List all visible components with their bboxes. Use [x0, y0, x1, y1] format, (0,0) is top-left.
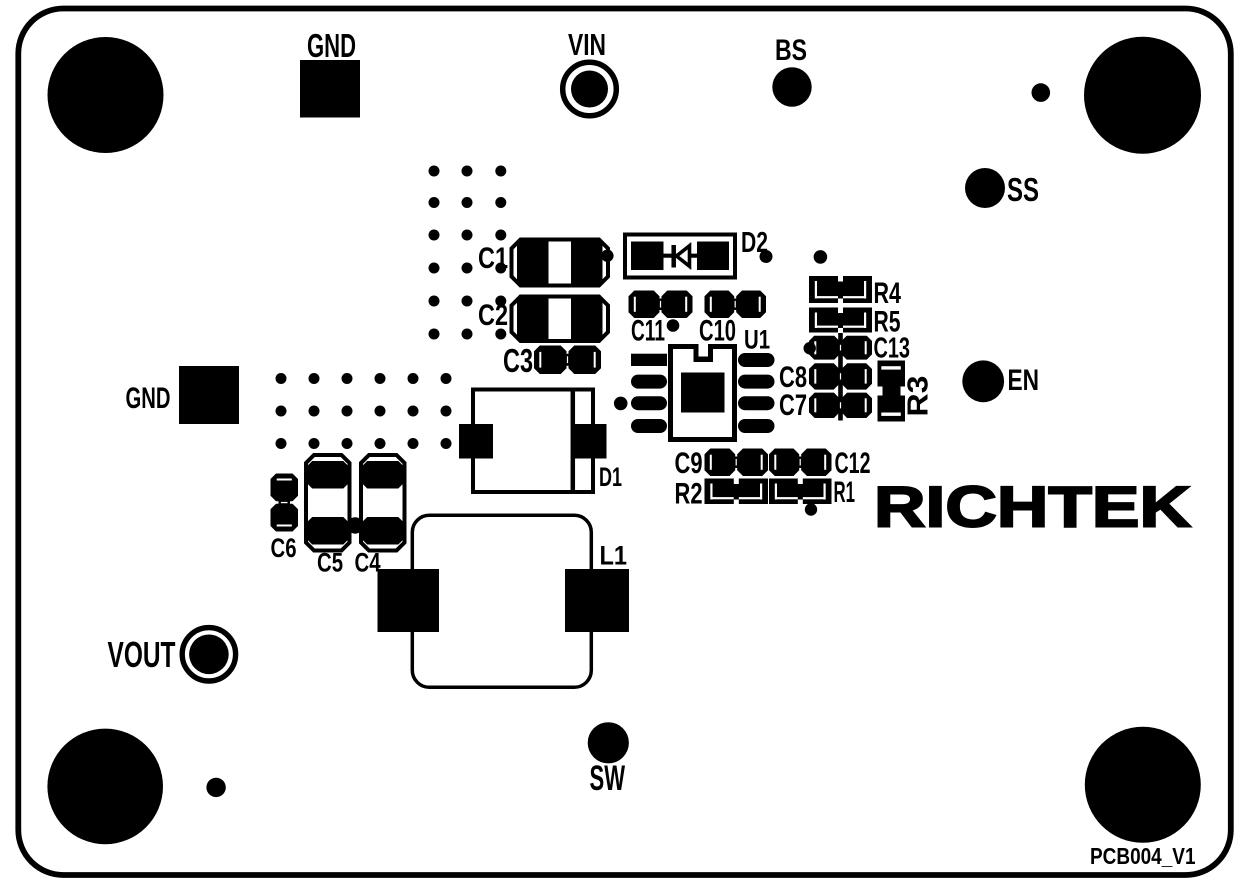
svg-text:C1: C1 — [478, 242, 508, 275]
svg-text:C6: C6 — [271, 533, 297, 563]
svg-text:R3: R3 — [903, 376, 935, 417]
svg-text:L1: L1 — [600, 541, 628, 571]
svg-text:VOUT: VOUT — [108, 634, 176, 675]
svg-text:C11: C11 — [631, 315, 665, 348]
svg-text:GND: GND — [126, 382, 171, 415]
svg-text:SW: SW — [590, 759, 626, 798]
svg-text:PCB004_V1: PCB004_V1 — [1090, 843, 1196, 869]
svg-text:U1: U1 — [744, 325, 770, 355]
svg-text:C2: C2 — [478, 299, 508, 332]
svg-text:RICHTEK: RICHTEK — [874, 476, 1191, 540]
svg-text:EN: EN — [1008, 364, 1040, 397]
svg-text:R1: R1 — [834, 476, 856, 509]
svg-text:C7: C7 — [779, 389, 807, 422]
svg-text:C4: C4 — [355, 548, 381, 578]
svg-text:D1: D1 — [599, 462, 622, 492]
svg-text:C5: C5 — [317, 548, 343, 578]
svg-text:C9: C9 — [675, 447, 703, 480]
svg-text:R2: R2 — [675, 478, 703, 511]
svg-text:C13: C13 — [874, 333, 911, 365]
svg-text:GND: GND — [307, 28, 356, 65]
svg-text:SS: SS — [1007, 171, 1039, 208]
svg-text:VIN: VIN — [568, 27, 606, 62]
svg-text:BS: BS — [775, 34, 807, 67]
svg-text:C3: C3 — [503, 342, 533, 379]
svg-text:C10: C10 — [699, 315, 736, 348]
